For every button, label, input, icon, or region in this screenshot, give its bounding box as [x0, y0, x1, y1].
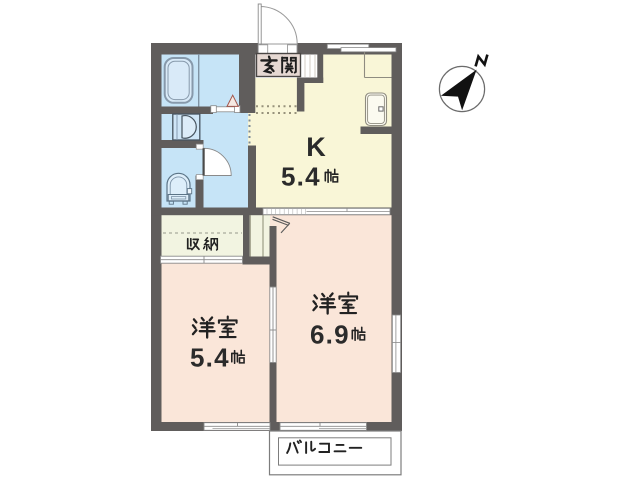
svg-text:5.4: 5.4	[190, 343, 230, 373]
svg-text:6.9: 6.9	[310, 320, 350, 350]
svg-text:K: K	[306, 132, 326, 162]
svg-text:5.4: 5.4	[281, 162, 321, 192]
